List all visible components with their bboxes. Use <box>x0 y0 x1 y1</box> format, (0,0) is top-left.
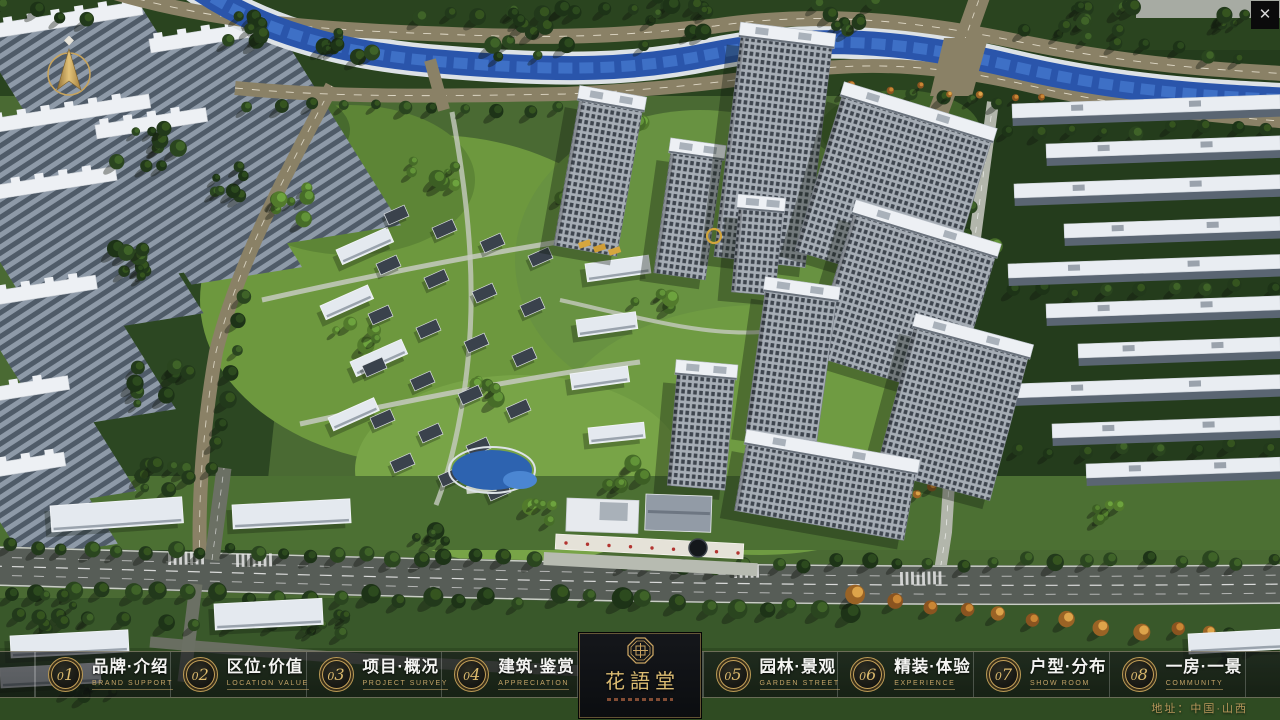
badge-02-icon: 02 <box>183 657 218 692</box>
logo-huayutang[interactable]: 花語堂 <box>578 632 702 719</box>
badge-03-icon: 03 <box>319 657 354 692</box>
address-label: 地址：中国·山西 <box>1151 700 1248 716</box>
nav-item-project[interactable]: 03 项目·概况 PROJECT SURVEY <box>307 652 443 697</box>
nav-item-label-en: APPRECIATION <box>498 680 569 690</box>
nav-item-number: 07 <box>995 667 1012 683</box>
nav-item-floorplan[interactable]: 07 户型·分布 SHOW ROOM <box>974 652 1110 697</box>
nav-item-location[interactable]: 02 区位·价值 LOCATION VALUE <box>171 652 307 697</box>
badge-05-icon: 05 <box>716 657 751 692</box>
nav-right-pad <box>1246 652 1280 697</box>
nav-item-label-zh: 园林·景观 <box>760 659 840 676</box>
nav-item-label-en: GARDEN STREET <box>760 680 840 690</box>
nav-item-label-en: COMMUNITY <box>1166 680 1224 690</box>
slab-building <box>208 598 323 635</box>
logo-title: 花語堂 <box>600 665 680 694</box>
nav-item-label-en: PROJECT SURVEY <box>363 680 449 690</box>
close-button[interactable]: ✕ <box>1251 1 1279 29</box>
nav-item-garden[interactable]: 05 园林·景观 GARDEN STREET <box>703 652 839 697</box>
nav-item-label-en: EXPERIENCE <box>894 680 955 690</box>
nav-item-label-en: SHOW ROOM <box>1030 680 1090 690</box>
nav-item-number: 08 <box>1131 667 1148 683</box>
nav-item-label-zh: 建筑·鉴赏 <box>498 659 575 676</box>
community-aerial-map[interactable] <box>0 0 1280 720</box>
nav-item-label-zh: 项目·概况 <box>363 659 449 676</box>
nav-left-pad <box>0 652 35 697</box>
scene-root <box>0 0 1280 720</box>
badge-04-icon: 04 <box>454 657 489 692</box>
nav-item-label-zh: 一房·一景 <box>1166 659 1243 676</box>
badge-06-icon: 06 <box>850 657 885 692</box>
nav-item-view[interactable]: 08 一房·一景 COMMUNITY <box>1110 652 1246 697</box>
nav-item-brand[interactable]: 01 品牌·介绍 BRAND SUPPORT <box>35 652 171 697</box>
nav-item-label-zh: 品牌·介绍 <box>92 659 173 676</box>
presentation-screen: ✕ 01 品牌·介绍 BRAND SUPPORT 02 区位·价值 LOCATI… <box>0 0 1280 720</box>
seal-icon <box>627 637 654 664</box>
nav-item-number: 01 <box>57 667 74 683</box>
badge-01-icon: 01 <box>48 657 83 692</box>
nav-item-number: 06 <box>859 667 876 683</box>
logo-caption <box>607 698 673 701</box>
nav-item-label-en: LOCATION VALUE <box>227 680 309 690</box>
nav-item-label-zh: 精装·体验 <box>894 659 971 676</box>
nav-item-decoration[interactable]: 06 精装·体验 EXPERIENCE <box>838 652 974 697</box>
gate-emblem <box>689 539 707 557</box>
nav-item-label-zh: 区位·价值 <box>227 659 309 676</box>
nav-item-number: 04 <box>463 667 480 683</box>
nav-item-number: 05 <box>724 667 741 683</box>
nav-item-architecture[interactable]: 04 建筑·鉴赏 APPRECIATION <box>442 652 578 697</box>
badge-07-icon: 07 <box>986 657 1021 692</box>
nav-item-label-zh: 户型·分布 <box>1030 659 1107 676</box>
nav-item-number: 03 <box>327 667 344 683</box>
badge-08-icon: 08 <box>1122 657 1157 692</box>
nav-item-label-en: BRAND SUPPORT <box>92 680 173 690</box>
nav-item-number: 02 <box>192 667 209 683</box>
